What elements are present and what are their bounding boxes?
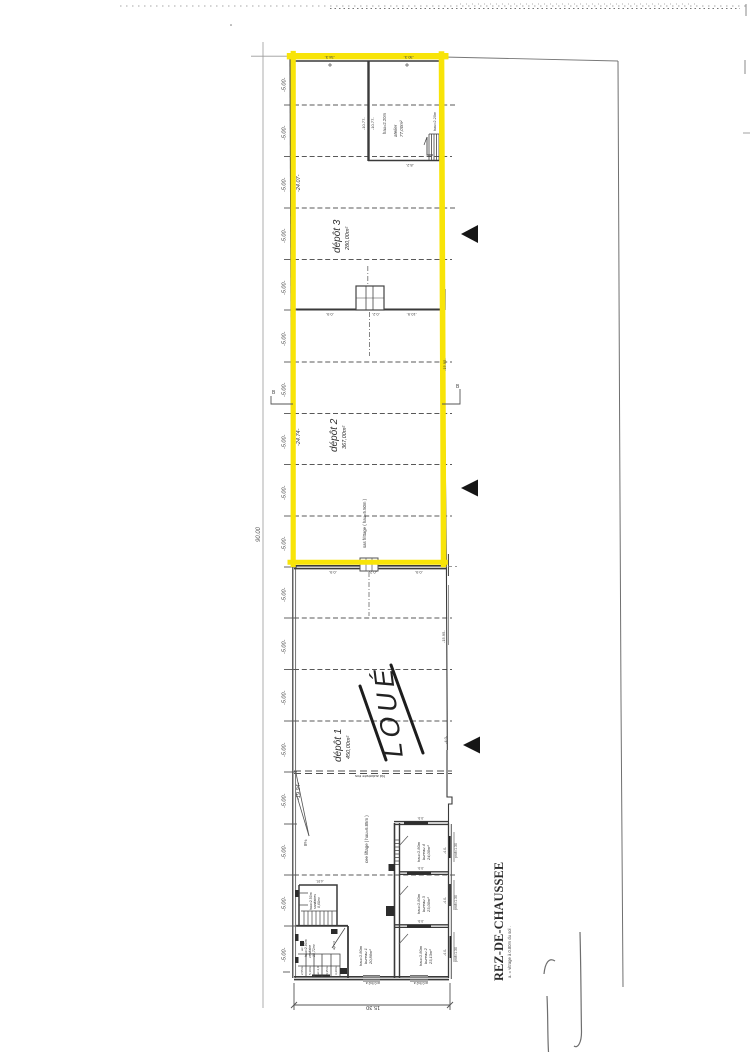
svg-text:-5.00-: -5.00- xyxy=(282,793,288,808)
svg-text:-24.07-: -24.07- xyxy=(296,174,302,192)
svg-text:-10.9-: -10.9- xyxy=(406,312,417,317)
svg-text:-0.2-: -0.2- xyxy=(371,312,380,317)
svg-text:-5.00-: -5.00- xyxy=(282,77,288,92)
svg-text:-4.0-: -4.0- xyxy=(443,846,447,854)
svg-text:3,20m²: 3,20m² xyxy=(334,966,338,975)
svg-text:a=0.9x2 a: a=0.9x2 a xyxy=(366,981,380,985)
svg-text:REZ-DE-CHAUSSEE: REZ-DE-CHAUSSEE xyxy=(492,862,506,981)
svg-text:-4.0-: -4.0- xyxy=(443,948,447,956)
svg-text:-5.00-: -5.00- xyxy=(282,177,288,192)
svg-text:-15.95-: -15.95- xyxy=(441,630,446,643)
svg-text:wc 1,30: wc 1,30 xyxy=(300,940,304,951)
svg-text:-0.9-: -0.9- xyxy=(414,570,423,575)
svg-text:5,10m²: 5,10m² xyxy=(308,966,312,975)
svg-text:-15.95-: -15.95- xyxy=(442,358,447,371)
svg-text:8,60m²: 8,60m² xyxy=(317,896,321,908)
svg-text:77,00m²: 77,00m² xyxy=(399,120,404,137)
svg-text:a. = vitrage à 0.80m du sol .: a. = vitrage à 0.80m du sol . xyxy=(507,926,512,978)
svg-text:24,00m²: 24,00m² xyxy=(426,845,431,861)
svg-text:-0.9-: -0.9- xyxy=(328,570,337,575)
svg-text:-5.00-: -5.00- xyxy=(282,947,288,962)
svg-text:wc 2,0: wc 2,0 xyxy=(316,966,320,975)
svg-text:dgt 2,0: dgt 2,0 xyxy=(332,940,336,950)
svg-text:hau=2.20m: hau=2.20m xyxy=(382,112,387,134)
svg-text:-5.00-: -5.00- xyxy=(282,382,288,397)
svg-text:-5.00-: -5.00- xyxy=(282,536,288,551)
svg-text:prof=1.30: prof=1.30 xyxy=(454,947,458,962)
svg-text:15.30: 15.30 xyxy=(366,1004,380,1010)
svg-text:-5.00-: -5.00- xyxy=(282,331,288,346)
svg-text:280,00m²: 280,00m² xyxy=(345,227,351,251)
svg-text:2,55m²: 2,55m² xyxy=(300,966,304,975)
svg-text:-24.74-: -24.74- xyxy=(296,428,302,446)
svg-text:-5.00-: -5.00- xyxy=(282,228,288,243)
svg-text:B: B xyxy=(456,384,460,390)
svg-text:-5.00-: -5.00- xyxy=(282,125,288,140)
svg-text:20,86m²: 20,86m² xyxy=(368,949,373,965)
svg-text:-4.97-: -4.97- xyxy=(316,879,324,883)
svg-text:B: B xyxy=(272,390,276,396)
svg-text:-4.0-: -4.0- xyxy=(443,735,448,744)
svg-text:-5.00-: -5.00- xyxy=(282,434,288,449)
svg-text:-5.00-: -5.00- xyxy=(282,742,288,757)
svg-text:-5.00-: -5.00- xyxy=(282,896,288,911)
svg-text:4,35m²: 4,35m² xyxy=(325,966,329,975)
svg-text:dépôt 3: dépôt 3 xyxy=(332,219,343,253)
svg-text:-5.00-: -5.00- xyxy=(282,587,288,602)
svg-text:a=0.9x2 a: a=0.9x2 a xyxy=(414,981,428,985)
svg-text:23,00m²: 23,00m² xyxy=(426,897,431,913)
svg-text:-0.9-: -0.9- xyxy=(325,312,334,317)
svg-text:-10.77-: -10.77- xyxy=(370,117,375,130)
svg-text:-30.3-: -30.3- xyxy=(403,55,414,60)
svg-text:dépôt 1: dépôt 1 xyxy=(333,729,344,762)
svg-text:90.00: 90.00 xyxy=(256,526,262,542)
svg-text:367,00m²: 367,00m² xyxy=(342,426,348,449)
svg-text:prof=1.30: prof=1.30 xyxy=(454,843,458,858)
svg-text:dépôt 2: dépôt 2 xyxy=(329,418,340,452)
svg-text:-5.00-: -5.00- xyxy=(282,639,288,654)
svg-text:-5.00-: -5.00- xyxy=(282,690,288,705)
svg-text:-34.3-: -34.3- xyxy=(324,55,335,60)
svg-text:-4.0-: -4.0- xyxy=(443,896,447,904)
svg-text:prof=1.30: prof=1.30 xyxy=(454,895,458,910)
svg-text:-5.00-: -5.00- xyxy=(282,485,288,500)
svg-text:-0.9-: -0.9- xyxy=(417,866,424,870)
svg-text:-0.9-: -0.9- xyxy=(417,919,424,923)
svg-text:450,00m²: 450,00m² xyxy=(346,736,352,759)
svg-text:-19.94-: -19.94- xyxy=(296,782,302,800)
svg-text:-0.2-: -0.2- xyxy=(368,570,377,575)
svg-text:8%: 8% xyxy=(303,839,308,846)
svg-text:-5.00-: -5.00- xyxy=(282,844,288,859)
svg-text:hau=2.20m: hau=2.20m xyxy=(433,112,437,131)
svg-text:Nd autorisée évs: Nd autorisée évs xyxy=(355,774,385,779)
svg-text:sas frittage ( hau=5.50m ): sas frittage ( hau=5.50m ) xyxy=(362,498,367,548)
svg-text:-8.2-: -8.2- xyxy=(405,163,414,168)
svg-text:23,13m²: 23,13m² xyxy=(428,949,433,965)
svg-text:cee liftage ( hau=6.85m ): cee liftage ( hau=6.85m ) xyxy=(364,815,369,863)
svg-text:-5.00-: -5.00- xyxy=(282,280,288,295)
svg-text:LOUÉ: LOUÉ xyxy=(366,663,409,759)
svg-text:-10.77-: -10.77- xyxy=(361,117,366,130)
svg-text:-0.9-: -0.9- xyxy=(417,816,424,820)
svg-text:atelier: atelier xyxy=(393,124,398,137)
